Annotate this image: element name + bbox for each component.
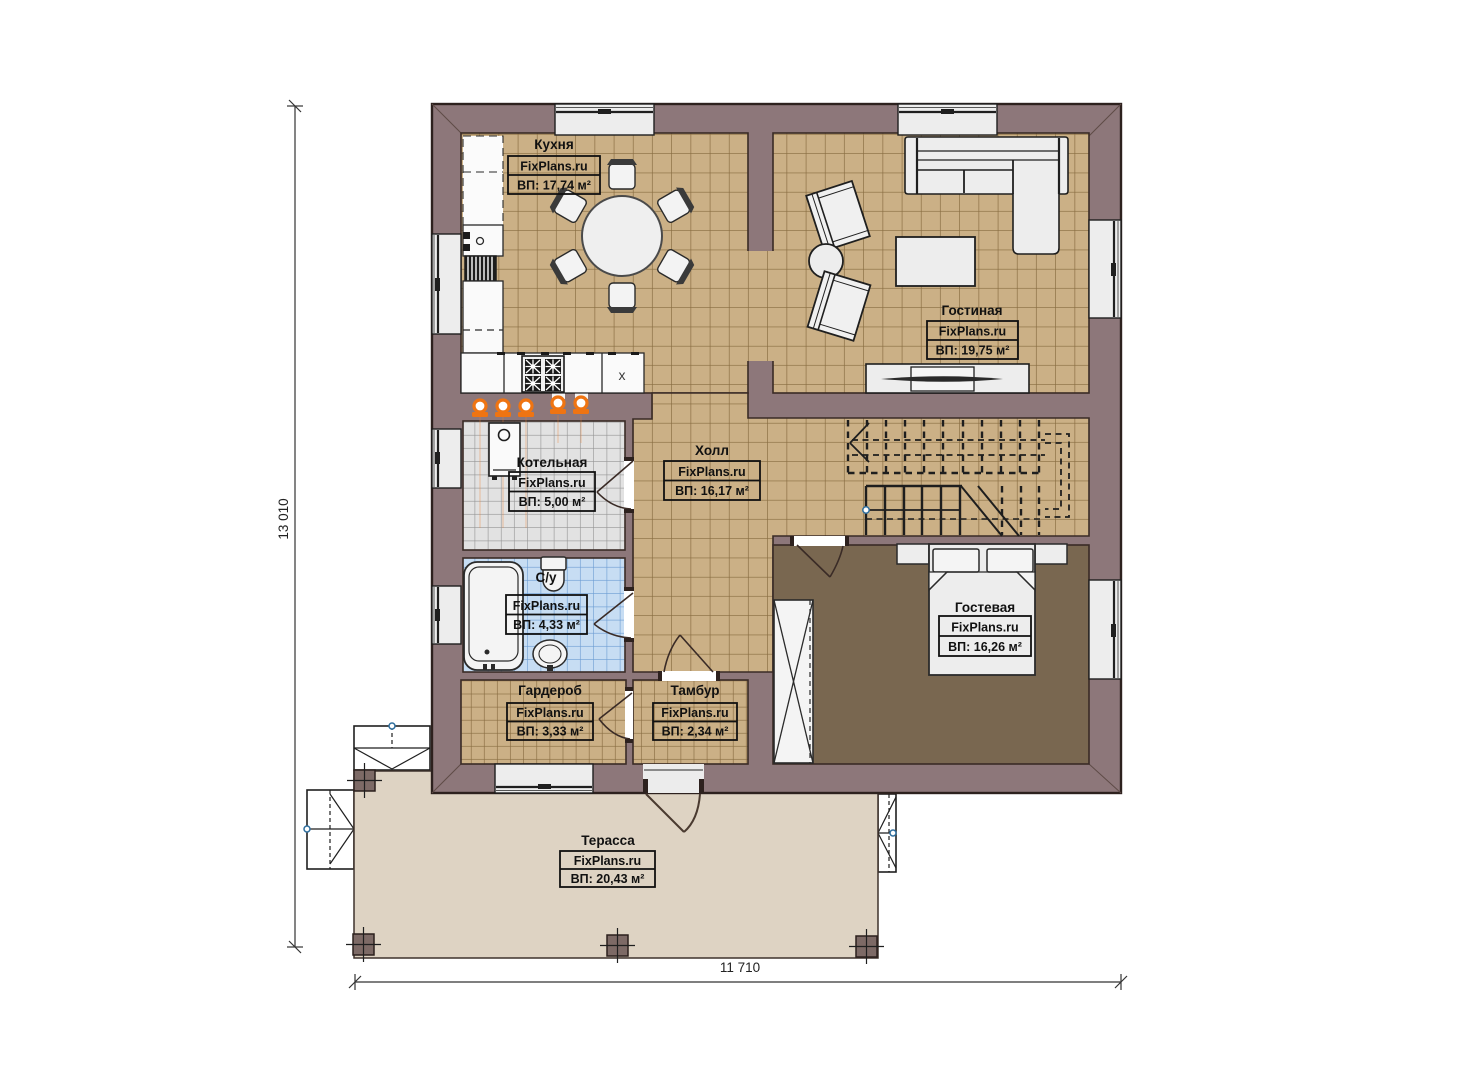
svg-text:FixPlans.ru: FixPlans.ru: [516, 706, 583, 720]
svg-text:Холл: Холл: [695, 443, 729, 458]
svg-text:ВП: 5,00 м²: ВП: 5,00 м²: [519, 495, 586, 509]
svg-text:11 710: 11 710: [720, 960, 760, 975]
svg-text:FixPlans.ru: FixPlans.ru: [513, 599, 580, 613]
svg-text:FixPlans.ru: FixPlans.ru: [520, 160, 587, 174]
svg-text:Гостевая: Гостевая: [955, 600, 1015, 615]
svg-text:FixPlans.ru: FixPlans.ru: [951, 621, 1018, 635]
svg-text:ВП: 3,33 м²: ВП: 3,33 м²: [517, 725, 584, 739]
svg-text:ВП: 2,34 м²: ВП: 2,34 м²: [662, 725, 729, 739]
svg-text:ВП: 20,43 м²: ВП: 20,43 м²: [571, 872, 645, 886]
svg-text:Кухня: Кухня: [534, 137, 573, 152]
svg-text:ВП: 4,33 м²: ВП: 4,33 м²: [513, 618, 580, 632]
svg-text:FixPlans.ru: FixPlans.ru: [574, 854, 641, 868]
svg-text:FixPlans.ru: FixPlans.ru: [661, 706, 728, 720]
svg-text:ВП: 19,75 м²: ВП: 19,75 м²: [936, 344, 1010, 358]
svg-text:С/у: С/у: [535, 570, 557, 585]
svg-text:Котельная: Котельная: [517, 455, 588, 470]
svg-text:FixPlans.ru: FixPlans.ru: [678, 465, 745, 479]
svg-text:Гостиная: Гостиная: [941, 303, 1002, 318]
svg-text:FixPlans.ru: FixPlans.ru: [518, 476, 585, 490]
svg-text:x: x: [619, 367, 626, 383]
svg-text:Гардероб: Гардероб: [518, 683, 582, 698]
svg-text:13 010: 13 010: [276, 498, 291, 539]
svg-text:Тамбур: Тамбур: [671, 683, 720, 698]
svg-text:ВП: 16,26 м²: ВП: 16,26 м²: [948, 640, 1022, 654]
svg-text:Терасса: Терасса: [581, 833, 635, 848]
svg-text:FixPlans.ru: FixPlans.ru: [939, 325, 1006, 339]
svg-text:ВП: 16,17 м²: ВП: 16,17 м²: [675, 484, 749, 498]
svg-text:ВП: 17,74 м²: ВП: 17,74 м²: [517, 179, 591, 193]
